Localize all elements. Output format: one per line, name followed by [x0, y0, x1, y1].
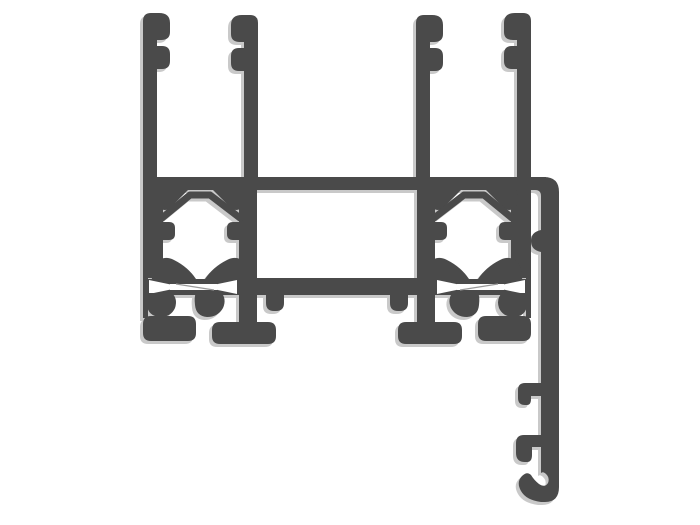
- profile-shape: [143, 13, 559, 502]
- wall-bump-outer: [163, 222, 175, 240]
- cavity-hill-inner: [205, 258, 249, 281]
- cavity-hill-outer: [152, 258, 196, 281]
- lower-lobe-outer: [147, 293, 176, 317]
- extrusion-profile-diagram: [0, 0, 700, 525]
- arm-tooth-upper: [518, 383, 541, 405]
- wall-bump-inner: [227, 222, 239, 240]
- lower-web-half: [255, 278, 340, 295]
- diagram-canvas: [0, 0, 700, 525]
- tower-wall-inner: [239, 188, 257, 322]
- web-nub: [266, 293, 284, 311]
- top-web-bar: [143, 177, 546, 190]
- arm-tooth-lower: [516, 435, 541, 462]
- mounting-foot-outer: [143, 316, 196, 341]
- lower-lobe-inner: [195, 292, 225, 317]
- serrated-fin-inner: [231, 15, 258, 190]
- serrated-fin-outer: [143, 13, 170, 190]
- mounting-foot-inner-tee: [212, 322, 276, 344]
